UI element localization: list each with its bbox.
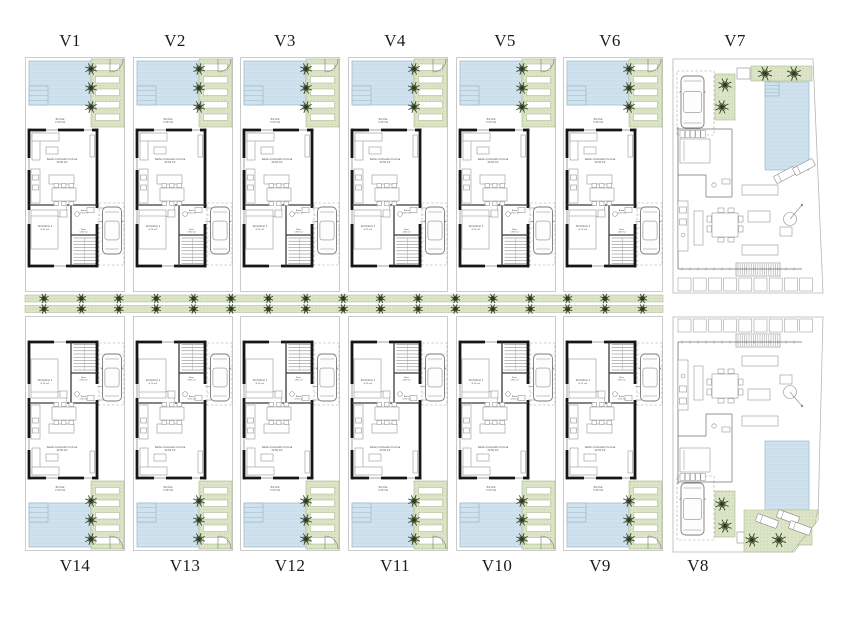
pool [352,61,414,105]
room-area-bedroom: 8.75 m2 [41,229,50,231]
room-area-living: 22.50 m2 [594,161,606,164]
furniture [518,208,525,213]
furniture [162,403,167,407]
villa-label-v8: V8 [687,556,709,576]
furniture [728,399,734,404]
furniture [493,202,498,206]
room-label-bath: Baño [81,209,87,212]
villa-plot-v1: Porche7.20 m2Salón-Comedor-Cocina22.50 m… [26,58,125,292]
villa-label-v9: V9 [589,556,611,576]
villa-plot-v10: Porche7.20 m2Salón-Comedor-Cocina22.50 m… [457,317,556,551]
furniture [500,421,505,425]
furniture [464,185,470,190]
room-area-living: 22.50 m2 [379,161,391,164]
room-area-living: 22.50 m2 [594,449,606,452]
villa-label-v6: V6 [599,31,621,51]
median-garden [25,294,663,314]
furniture [157,175,182,184]
furniture [248,428,254,433]
room-label-bath: Baño [512,395,518,398]
furniture [284,184,289,188]
room-area-hall: 1.85 m2 [294,380,303,382]
furniture [275,210,282,217]
furniture [377,202,382,206]
furniture [60,210,67,217]
furniture [87,208,94,213]
furniture [87,396,94,401]
furniture [680,398,687,404]
room-area-bedroom: 8.75 m2 [472,229,481,231]
furniture [571,418,577,423]
furniture [177,184,182,188]
furniture [141,185,147,190]
room-label-bedroom: Dormitorio 1 [253,225,268,228]
furniture [571,428,577,433]
furniture [198,451,203,473]
pool [29,61,91,105]
toilet-icon [712,424,716,428]
furniture [570,133,597,141]
room-area-hall: 1.85 m2 [617,232,626,234]
room-area-hall: 1.85 m2 [187,380,196,382]
furniture [170,403,175,407]
room-label-bath: Baño [189,395,195,398]
site-plan-svg: Porche7.20 m2Salón-Comedor-Cocina22.50 m… [0,0,850,620]
furniture [277,202,282,206]
room-area-living: 22.50 m2 [487,161,499,164]
room-area-bedroom: 8.75 m2 [579,383,588,385]
furniture [485,184,490,188]
furniture [195,396,202,401]
site-plan-canvas: Porche7.20 m2Salón-Comedor-Cocina22.50 m… [0,0,850,620]
furniture [302,208,309,213]
room-area-living: 22.50 m2 [164,449,176,452]
furniture [90,135,95,157]
furniture [157,424,182,433]
furniture [305,451,310,473]
car-icon [679,483,705,535]
car-icon [532,354,554,401]
furniture [154,454,166,461]
furniture [385,403,390,407]
furniture [269,202,274,206]
furniture [62,202,67,206]
room-area-bath: 3.90 m2 [187,399,196,401]
furniture [140,133,167,141]
villa-plot-v4: Porche7.20 m2Salón-Comedor-Cocina22.50 m… [349,58,448,292]
furniture [305,135,310,157]
villa-label-v5: V5 [494,31,516,51]
pool [244,503,306,547]
furniture [600,403,605,407]
room-area-bedroom: 8.75 m2 [256,383,265,385]
car-icon [532,207,554,254]
room-label-bedroom: Dormitorio 1 [361,379,376,382]
car-icon [101,354,123,401]
furniture [162,184,167,188]
furniture [718,208,724,213]
furniture [69,202,74,206]
pool [765,82,809,170]
furniture [177,403,182,407]
furniture [284,202,289,206]
villa-plot-v3: Porche7.20 m2Salón-Comedor-Cocina22.50 m… [241,58,340,292]
villa-plot-v6: Porche7.20 m2Salón-Comedor-Cocina22.50 m… [564,58,663,292]
furniture [383,210,390,217]
room-area-porche: 7.20 m2 [378,121,388,124]
furniture [177,202,182,206]
furniture [198,135,203,157]
furniture [261,454,273,461]
furniture [54,184,59,188]
villa-plot-v9: Porche7.20 m2Salón-Comedor-Cocina22.50 m… [564,317,663,551]
room-area-bath: 3.90 m2 [510,399,519,401]
villa-plot-v7 [673,59,823,293]
car-icon [424,354,446,401]
villa-label-v3: V3 [274,31,296,51]
car-icon [101,207,123,254]
furniture [600,421,605,425]
garden-strip [751,66,812,81]
room-label-bath: Baño [619,209,625,212]
furniture [722,179,730,184]
furniture [392,184,397,188]
room-area-bath: 3.90 m2 [510,213,519,215]
furniture [369,454,381,461]
pool [460,61,522,105]
room-area-living: 22.50 m2 [56,449,68,452]
furniture [33,175,39,180]
room-area-bath: 3.90 m2 [617,399,626,401]
furniture [69,403,74,407]
furniture [52,407,76,420]
furniture [712,213,738,237]
furniture [628,135,633,157]
toilet-icon [506,392,511,397]
furniture [170,202,175,206]
furniture [170,421,175,425]
furniture [748,389,770,400]
furniture [694,366,703,400]
furniture [355,133,382,141]
room-area-bath: 3.90 m2 [79,399,88,401]
room-area-hall: 1.85 m2 [294,232,303,234]
furniture [269,184,274,188]
furniture [375,407,399,420]
room-area-bath: 3.90 m2 [402,399,411,401]
furniture [477,147,489,154]
villa-label-v12: V12 [275,556,305,576]
furniture [140,467,167,475]
toilet-icon [398,392,403,397]
furniture [141,418,147,423]
furniture [269,403,274,407]
furniture [464,175,470,180]
room-label-bedroom: Dormitorio 1 [38,379,53,382]
furniture [728,369,734,374]
pool [29,503,91,547]
furniture [154,147,166,154]
furniture [480,424,505,433]
furniture [628,451,633,473]
room-area-bath: 3.90 m2 [294,399,303,401]
furniture [728,208,734,213]
furniture [356,185,362,190]
furniture [277,184,282,188]
room-area-living: 22.50 m2 [164,161,176,164]
furniture [277,403,282,407]
furniture [62,184,67,188]
furniture [141,175,147,180]
furniture [493,403,498,407]
room-area-porche: 7.20 m2 [270,121,280,124]
furniture [607,421,612,425]
furniture [491,391,498,398]
room-area-living: 22.50 m2 [271,449,283,452]
villa-plot-v5: Porche7.20 m2Salón-Comedor-Cocina22.50 m… [457,58,556,292]
pool [244,61,306,105]
furniture [780,375,792,384]
room-area-hall: 1.85 m2 [510,380,519,382]
furniture [264,424,289,433]
car-icon [639,207,661,254]
furniture [377,421,382,425]
furniture [521,135,526,157]
room-label-bath: Baño [296,209,302,212]
pool [137,503,199,547]
villa-plot-v11: Porche7.20 m2Salón-Comedor-Cocina22.50 m… [349,317,448,551]
room-area-living: 22.50 m2 [379,449,391,452]
furniture [247,133,274,141]
villa-plot-v2: Porche7.20 m2Salón-Comedor-Cocina22.50 m… [134,58,233,292]
furniture [742,356,778,366]
room-label-bedroom: Dormitorio 1 [38,225,53,228]
room-area-bath: 3.90 m2 [617,213,626,215]
furniture [383,391,390,398]
villa-plot-v8 [673,317,823,552]
furniture [500,403,505,407]
furniture [168,210,175,217]
villa-label-v11: V11 [380,556,410,576]
furniture [680,386,687,392]
room-area-porche: 7.20 m2 [55,121,65,124]
furniture [356,428,362,433]
pool [352,503,414,547]
room-area-bedroom: 8.75 m2 [149,383,158,385]
room-label-bedroom: Dormitorio 1 [576,379,591,382]
furniture [742,185,778,195]
furniture [160,188,184,201]
furniture [162,421,167,425]
furniture [483,407,507,420]
room-area-porche: 7.20 m2 [378,489,388,492]
room-label-bedroom: Dormitorio 1 [253,379,268,382]
furniture [521,451,526,473]
furniture [369,147,381,154]
room-area-bath: 3.90 m2 [294,213,303,215]
furniture [707,226,712,232]
villa-label-v7: V7 [724,31,746,51]
villa-plot-v14: Porche7.20 m2Salón-Comedor-Cocina22.50 m… [26,317,125,551]
furniture [464,418,470,423]
furniture [592,184,597,188]
toilet-icon [290,392,295,397]
car-icon [316,354,338,401]
furniture [375,188,399,201]
furniture [33,185,39,190]
furniture [680,207,687,213]
furniture [718,369,724,374]
room-area-porche: 7.20 m2 [163,489,173,492]
furniture [464,428,470,433]
furniture [739,379,744,385]
furniture [607,202,612,206]
furniture [571,175,577,180]
furniture [748,211,770,222]
room-area-hall: 1.85 m2 [402,380,411,382]
car-icon [209,207,231,254]
furniture [267,407,291,420]
room-area-bedroom: 8.75 m2 [579,229,588,231]
furniture [600,184,605,188]
room-label-bedroom: Dormitorio 1 [361,225,376,228]
room-label-bath: Baño [512,209,518,212]
villa-label-v2: V2 [164,31,186,51]
furniture [377,184,382,188]
furniture [584,454,596,461]
room-label-bath: Baño [189,209,195,212]
room-area-porche: 7.20 m2 [486,489,496,492]
furniture [584,147,596,154]
furniture [277,421,282,425]
room-label-bath: Baño [81,395,87,398]
furniture [248,175,254,180]
furniture [261,147,273,154]
furniture [483,188,507,201]
tiles-terrace [678,278,813,291]
furniture [680,219,687,225]
furniture [592,421,597,425]
furniture [62,403,67,407]
room-area-bedroom: 8.75 m2 [364,383,373,385]
furniture [60,391,67,398]
furniture [32,133,59,141]
furniture [372,424,397,433]
furniture [680,448,710,472]
room-area-bath: 3.90 m2 [402,213,411,215]
room-area-bedroom: 8.75 m2 [256,229,265,231]
furniture [248,185,254,190]
furniture [413,451,418,473]
furniture [722,427,730,432]
furniture [571,185,577,190]
furniture [355,467,382,475]
toilet-icon [712,183,716,187]
pool [567,61,629,105]
furniture [54,403,59,407]
car-icon [639,354,661,401]
room-label-bedroom: Dormitorio 1 [469,379,484,382]
furniture [302,396,309,401]
toilet-icon [183,392,188,397]
room-area-hall: 1.85 m2 [617,380,626,382]
furniture [742,416,778,426]
furniture [592,202,597,206]
furniture [177,421,182,425]
furniture [372,175,397,184]
furniture [587,175,612,184]
villa-plot-v12: Porche7.20 m2Salón-Comedor-Cocina22.50 m… [241,317,340,551]
furniture [392,403,397,407]
furniture [69,184,74,188]
furniture [356,418,362,423]
room-area-porche: 7.20 m2 [163,121,173,124]
villa-label-v10: V10 [482,556,512,576]
villa-label-v1: V1 [59,31,81,51]
furniture [518,396,525,401]
room-label-bath: Baño [619,395,625,398]
furniture [742,245,778,255]
room-area-porche: 7.20 m2 [486,121,496,124]
room-label-bedroom: Dormitorio 1 [576,225,591,228]
furniture [33,428,39,433]
room-area-porche: 7.20 m2 [593,121,603,124]
furniture [392,202,397,206]
car-icon [316,207,338,254]
furniture [46,147,58,154]
room-area-living: 22.50 m2 [56,161,68,164]
furniture [392,421,397,425]
furniture [463,467,490,475]
furniture [500,184,505,188]
furniture [493,421,498,425]
room-area-bath: 3.90 m2 [187,213,196,215]
furniture [168,391,175,398]
room-area-living: 22.50 m2 [271,161,283,164]
car-icon [424,207,446,254]
furniture [625,396,632,401]
furniture [33,418,39,423]
furniture [248,418,254,423]
furniture [162,202,167,206]
pool [567,503,629,547]
room-area-porche: 7.20 m2 [593,489,603,492]
room-area-bedroom: 8.75 m2 [149,229,158,231]
furniture [275,391,282,398]
room-label-bedroom: Dormitorio 1 [146,379,161,382]
furniture [739,216,744,222]
furniture [590,188,614,201]
furniture [707,379,712,385]
room-area-bedroom: 8.75 m2 [41,383,50,385]
room-label-bath: Baño [404,209,410,212]
furniture [718,238,724,243]
furniture [607,184,612,188]
furniture [49,424,74,433]
room-area-hall: 1.85 m2 [79,232,88,234]
room-label-bedroom: Dormitorio 1 [146,225,161,228]
furniture [598,391,605,398]
furniture [90,451,95,473]
furniture [694,211,703,245]
furniture [485,202,490,206]
pool [460,503,522,547]
room-area-porche: 7.20 m2 [55,489,65,492]
furniture [590,407,614,420]
room-label-bath: Baño [296,395,302,398]
room-area-hall: 1.85 m2 [187,232,196,234]
furniture [247,467,274,475]
